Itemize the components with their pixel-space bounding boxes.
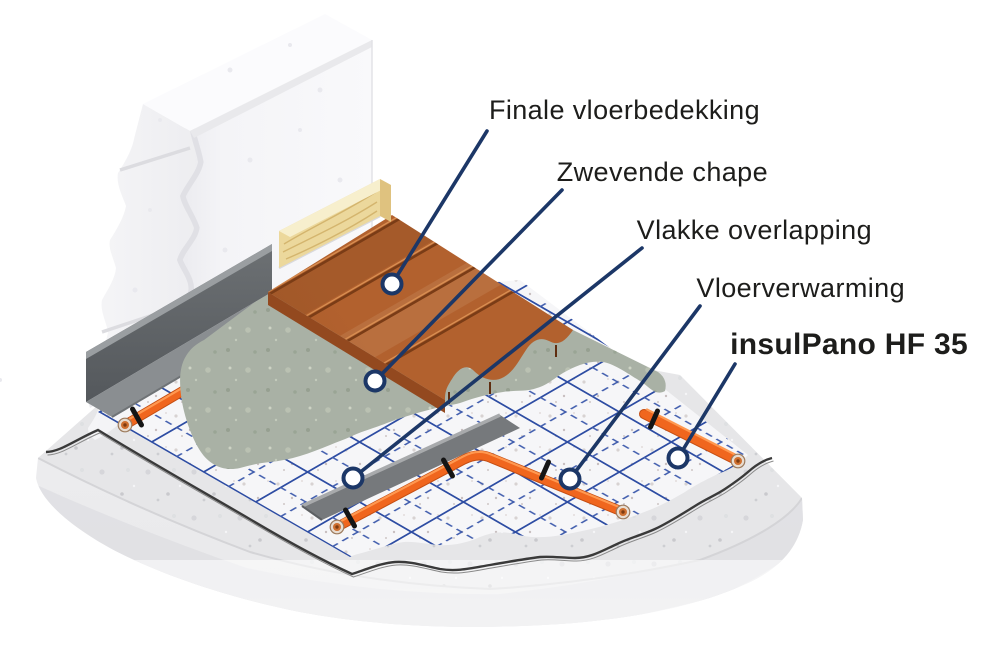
marker-product — [669, 449, 688, 468]
label-vlakke-overlapping: Vlakke overlapping — [637, 215, 872, 245]
marker-chape — [366, 372, 385, 391]
label-zwevende-chape: Zwevende chape — [557, 157, 768, 187]
label-finale-vloerbedekking: Finale vloerbedekking — [489, 95, 760, 125]
diagram-canvas: Finale vloerbedekking Zwevende chape Vla… — [0, 0, 1000, 667]
skirting-end-face — [380, 179, 391, 222]
marker-verwarming — [561, 470, 580, 489]
label-vloerverwarming: Vloerverwarming — [696, 273, 905, 303]
marker-finale — [383, 275, 402, 294]
floor-construction-diagram: Finale vloerbedekking Zwevende chape Vla… — [0, 0, 1000, 667]
label-product-insulpano-hf35: insulPano HF 35 — [730, 328, 968, 361]
marker-overlap — [344, 469, 363, 488]
